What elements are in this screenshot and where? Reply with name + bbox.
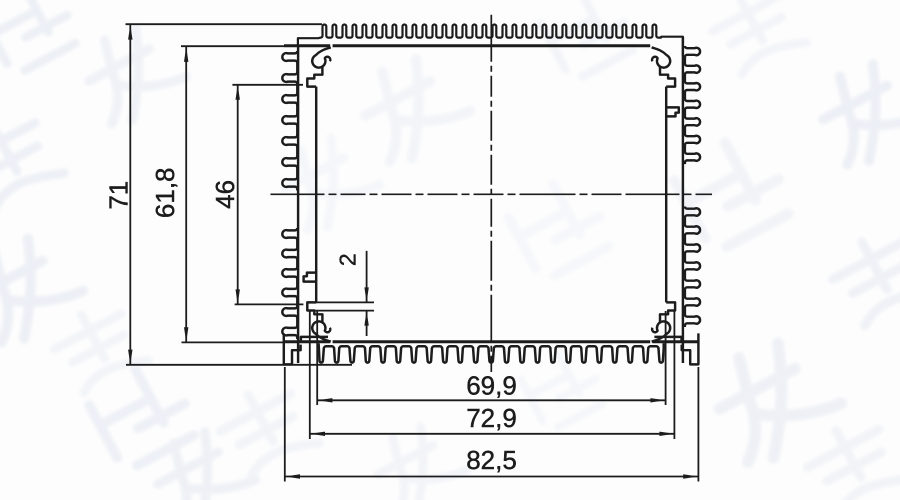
svg-text:46: 46 [210,180,240,209]
svg-text:2: 2 [335,253,361,266]
svg-text:71: 71 [103,181,133,210]
svg-text:61,8: 61,8 [150,167,180,218]
svg-text:72,9: 72,9 [466,403,517,433]
svg-text:82,5: 82,5 [466,445,517,475]
svg-text:69,9: 69,9 [466,371,517,401]
